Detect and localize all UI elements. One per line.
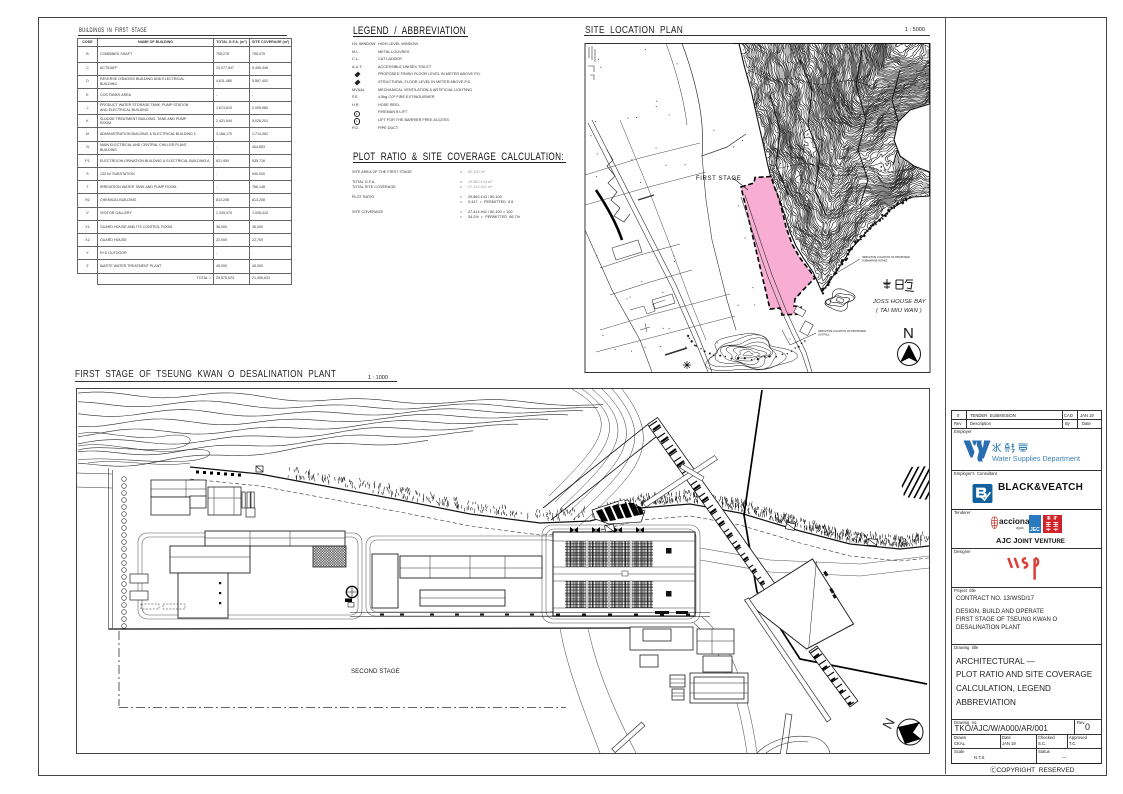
svg-text:INDICATIVE LOCATION OF PROPOSE: INDICATIVE LOCATION OF PROPOSED	[818, 329, 866, 333]
svg-text:N: N	[903, 325, 914, 342]
svg-text:OUTFALL: OUTFALL	[818, 333, 830, 337]
svg-text:JOSS HOUSE BAY: JOSS HOUSE BAY	[872, 299, 927, 305]
svg-text:SUBMARINE INTAKE: SUBMARINE INTAKE	[862, 259, 888, 263]
svg-text:( TAI MIU WAN ): ( TAI MIU WAN )	[876, 308, 922, 314]
svg-text:SECOND STAGE: SECOND STAGE	[351, 668, 400, 675]
svg-text:INDICATIVE LOCATION OF PROPOSE: INDICATIVE LOCATION OF PROPOSED	[862, 255, 910, 259]
svg-text:N: N	[879, 715, 898, 731]
